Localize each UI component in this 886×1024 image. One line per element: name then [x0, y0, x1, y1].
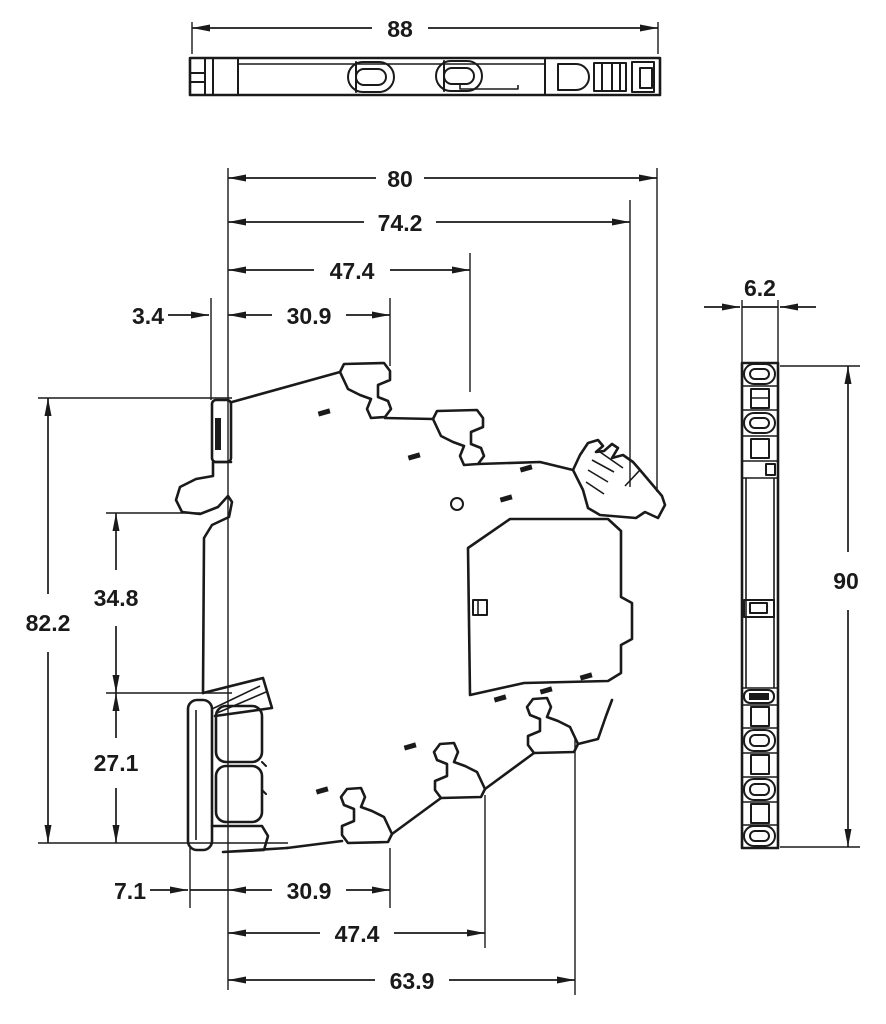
dim-63-9-label: 63.9	[390, 968, 435, 994]
release-hook	[176, 462, 232, 693]
dim-top-width-label: 88	[387, 16, 413, 42]
dim-overall-depth-label: 80	[387, 166, 413, 192]
molded-slots	[316, 408, 593, 794]
top-view-latch-detail	[558, 64, 589, 90]
terminal-bottom-1	[341, 788, 392, 843]
dim-47-4-bottom-label: 47.4	[335, 921, 380, 947]
dim-30-9-bottom-label: 30.9	[287, 878, 332, 904]
dim-3-4-label: 3.4	[132, 303, 164, 329]
top-view-screw-slot	[436, 61, 482, 91]
technical-drawing-page: 88 80 74.2 47.4 3.4 30.9 82.2 34.8 27.1	[0, 0, 886, 1024]
terminal-top-1	[340, 363, 391, 418]
dim-74-2-label: 74.2	[378, 210, 423, 236]
din-rail-clip	[188, 678, 287, 852]
top-view	[190, 58, 660, 95]
vent-hole	[451, 498, 463, 510]
side-view	[176, 363, 665, 852]
dim-90-label: 90	[833, 568, 859, 594]
front-view	[742, 363, 778, 848]
dimension-annotations: 88 80 74.2 47.4 3.4 30.9 82.2 34.8 27.1	[26, 16, 860, 995]
dim-7-1-label: 7.1	[114, 878, 146, 904]
dim-34-8-label: 34.8	[94, 585, 139, 611]
dim-82-2-label: 82.2	[26, 610, 71, 636]
dim-47-4-top-label: 47.4	[330, 258, 375, 284]
terminal-top-2	[433, 410, 484, 465]
dim-30-9-top-label: 30.9	[287, 303, 332, 329]
dim-6-2-label: 6.2	[744, 275, 776, 301]
top-view-screw-slot	[348, 62, 394, 92]
latch-assembly	[573, 440, 665, 518]
terminal-bottom-2	[434, 743, 485, 798]
dim-27-1-label: 27.1	[94, 750, 139, 776]
relay-socket-body	[468, 519, 632, 695]
terminal-bottom-3	[527, 698, 578, 753]
dimension-drawing-canvas: 88 80 74.2 47.4 3.4 30.9 82.2 34.8 27.1	[0, 0, 886, 1024]
